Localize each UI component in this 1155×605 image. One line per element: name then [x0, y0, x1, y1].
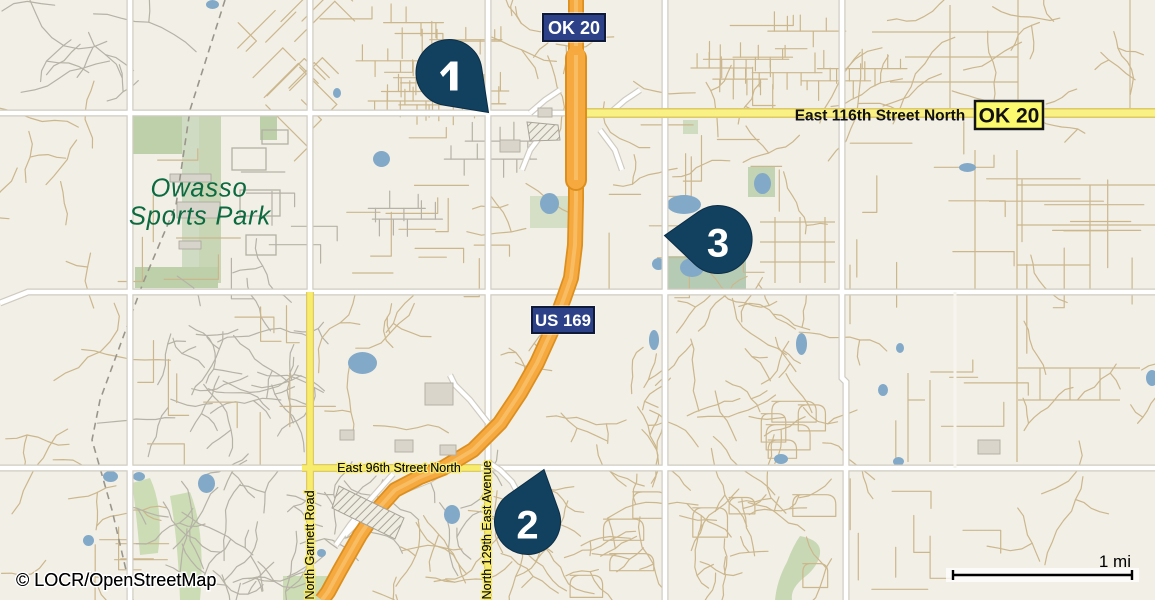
svg-text:1 mi: 1 mi	[1099, 552, 1131, 571]
svg-text:North Garnett Road: North Garnett Road	[303, 490, 317, 599]
svg-text:OK 20: OK 20	[979, 105, 1040, 128]
svg-text:3: 3	[707, 222, 729, 266]
svg-text:Owasso: Owasso	[151, 175, 248, 203]
svg-text:North 129th East Avenue: North 129th East Avenue	[480, 461, 494, 600]
svg-text:© LOCR/OpenStreetMap: © LOCR/OpenStreetMap	[16, 570, 216, 590]
svg-text:East 116th Street North: East 116th Street North	[795, 108, 966, 125]
svg-text:East 96th Street North: East 96th Street North	[337, 461, 461, 475]
svg-text:OK 20: OK 20	[548, 18, 600, 38]
svg-text:Sports Park: Sports Park	[129, 203, 271, 231]
svg-text:2: 2	[516, 504, 538, 548]
svg-text:US 169: US 169	[535, 311, 591, 330]
